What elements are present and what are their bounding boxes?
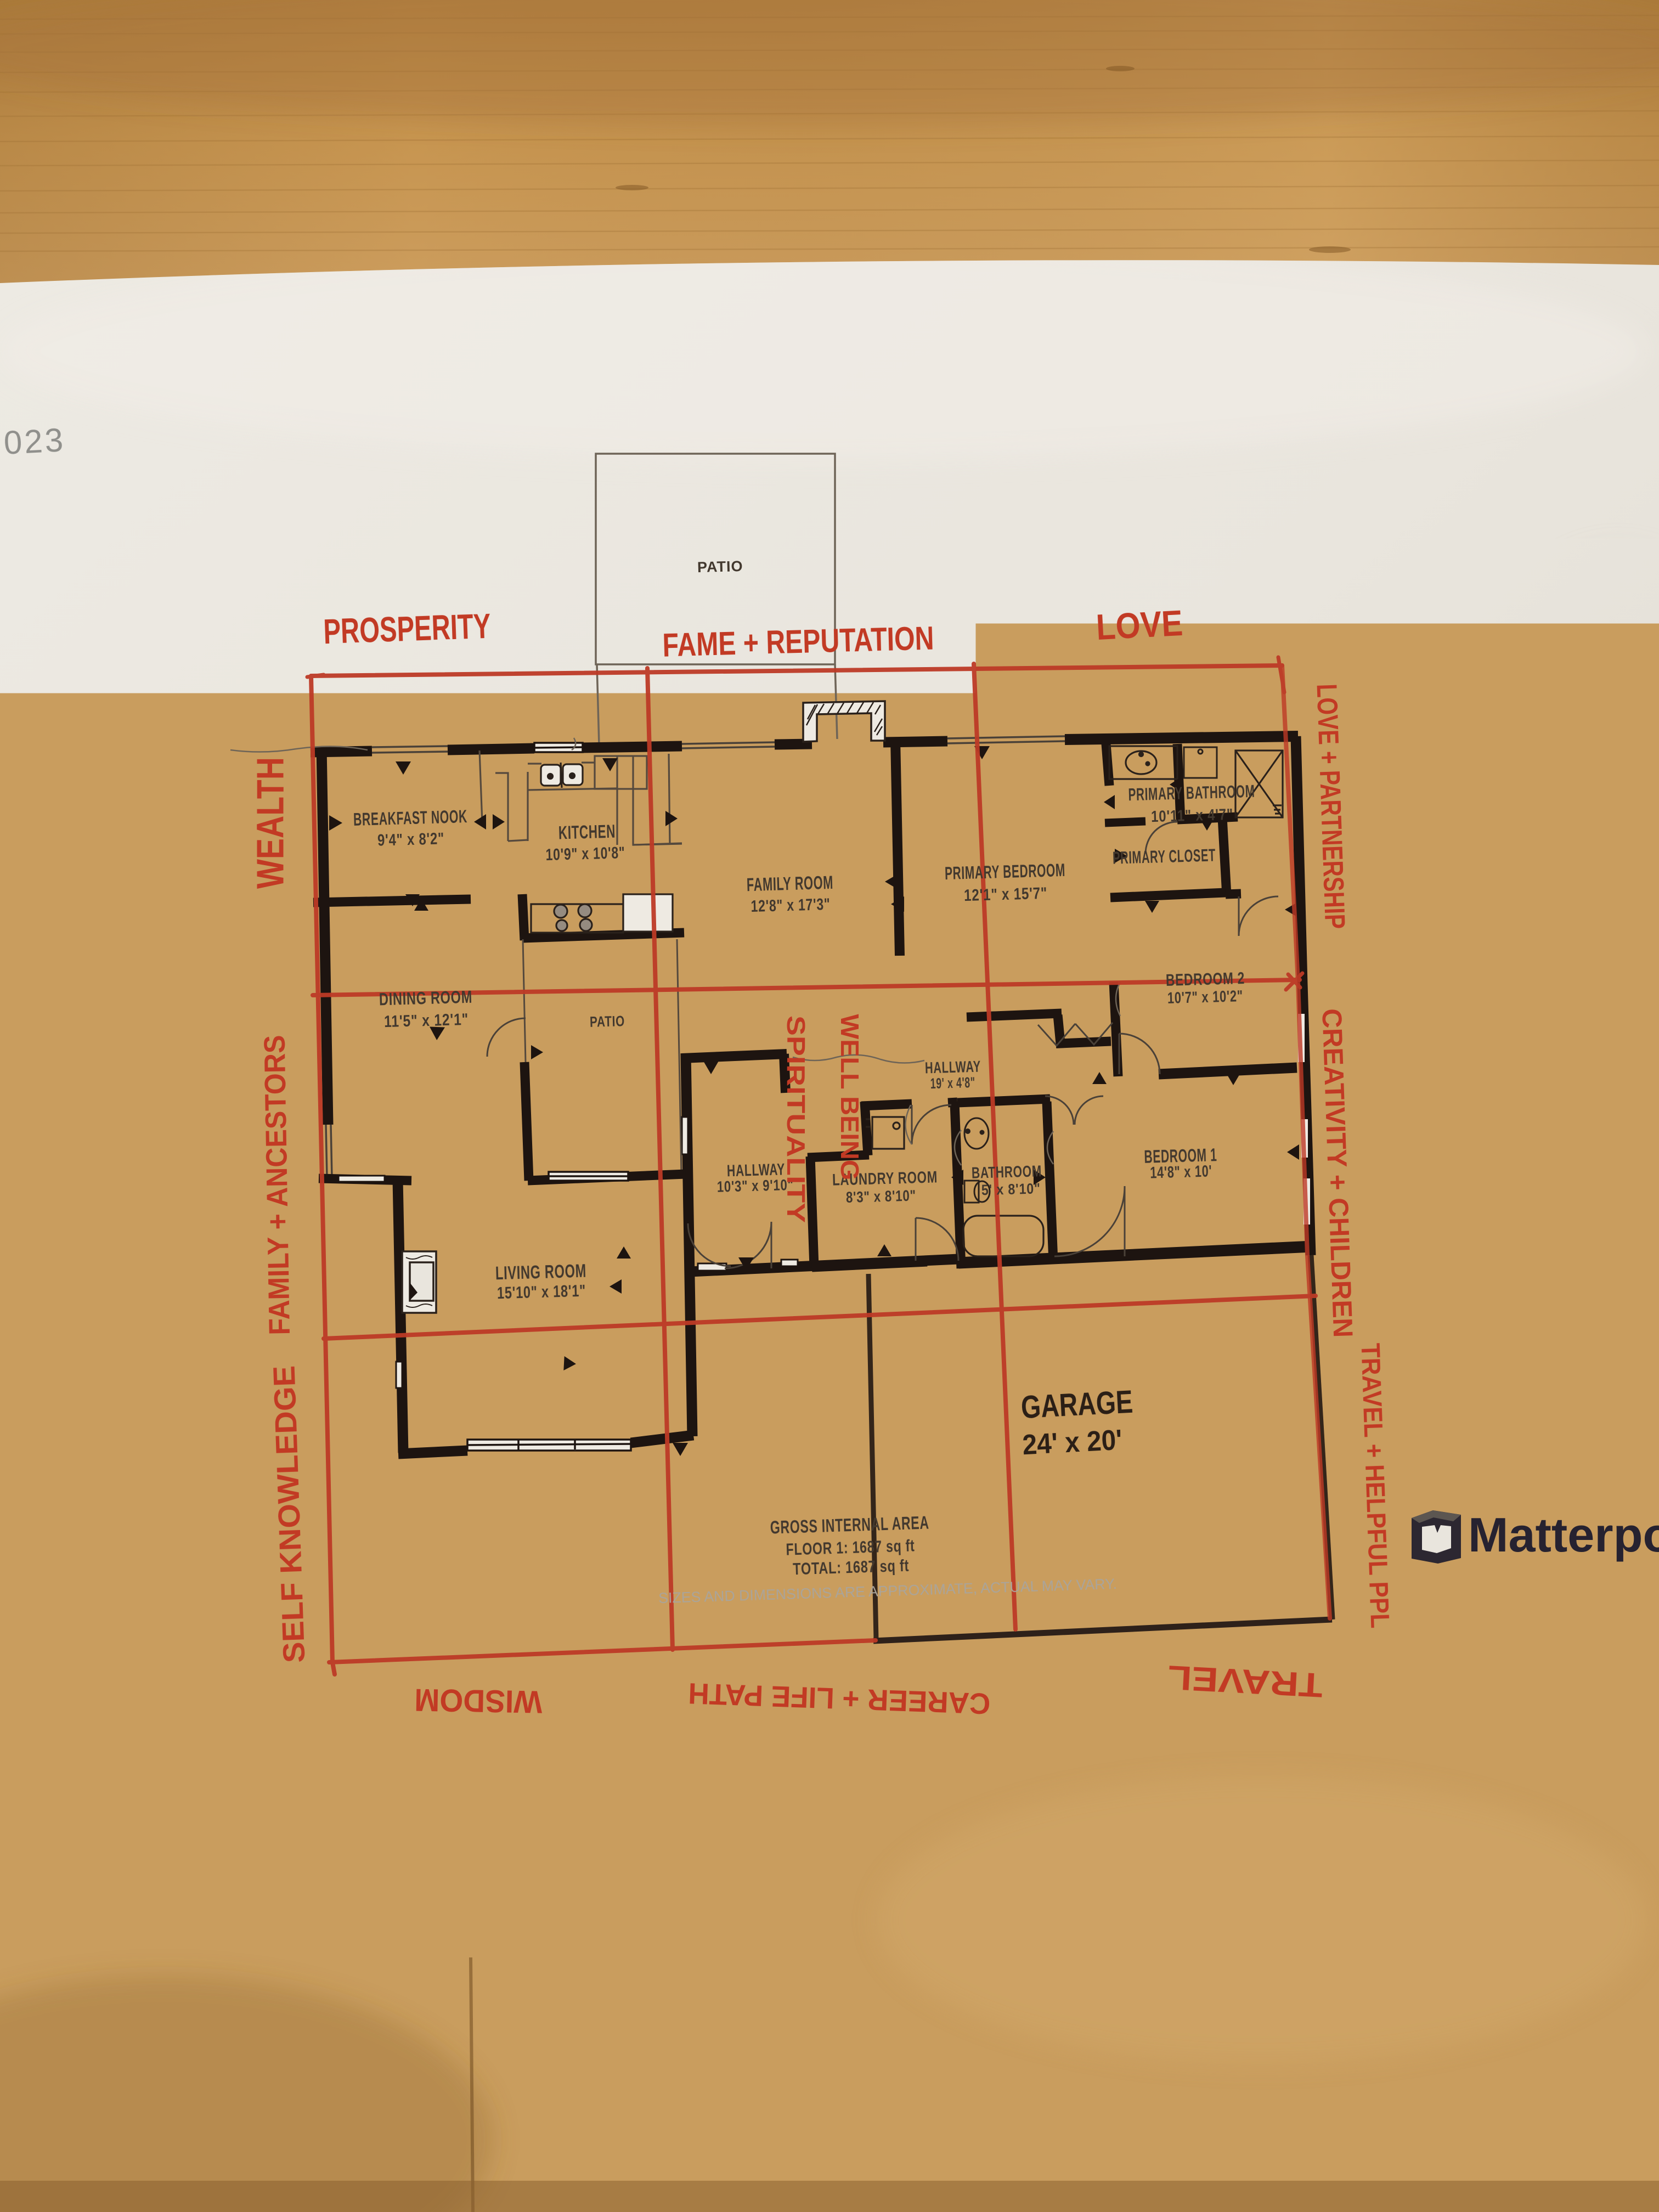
svg-text:BREAKFAST NOOK: BREAKFAST NOOK [353, 806, 467, 830]
svg-text:KITCHEN: KITCHEN [558, 821, 616, 844]
svg-text:10'11" x 4'7": 10'11" x 4'7" [1151, 806, 1234, 826]
svg-text:12'8" x 17'3": 12'8" x 17'3" [751, 895, 831, 916]
svg-text:PRIMARY CLOSET: PRIMARY CLOSET [1113, 845, 1216, 867]
svg-text:14'8" x 10': 14'8" x 10' [1150, 1162, 1212, 1182]
svg-text:10'7" x 10'2": 10'7" x 10'2" [1167, 988, 1244, 1007]
svg-text:24' x 20': 24' x 20' [1022, 1424, 1123, 1461]
svg-text:BEDROOM 2: BEDROOM 2 [1166, 968, 1245, 990]
svg-text:12'1" x 15'7": 12'1" x 15'7" [964, 884, 1048, 905]
svg-text:FAMILY ROOM: FAMILY ROOM [746, 872, 833, 895]
svg-text:PATIO: PATIO [697, 558, 743, 575]
svg-text:PATIO: PATIO [590, 1013, 625, 1030]
svg-text:023: 023 [3, 421, 66, 461]
svg-text:WISDOM: WISDOM [414, 1682, 543, 1720]
svg-text:GARAGE: GARAGE [1020, 1384, 1133, 1426]
svg-text:5' x 8'10": 5' x 8'10" [981, 1180, 1041, 1198]
svg-text:LOVE: LOVE [1095, 602, 1184, 647]
svg-text:11'5" x 12'1": 11'5" x 12'1" [384, 1011, 469, 1031]
svg-text:15'10" x 18'1": 15'10" x 18'1" [497, 1281, 586, 1303]
svg-text:BATHROOM: BATHROOM [972, 1163, 1042, 1182]
svg-text:PROSPERITY: PROSPERITY [323, 606, 491, 652]
svg-text:SPIRITUALITY: SPIRITUALITY [782, 1015, 810, 1223]
svg-text:TOTAL: 1687 sq ft: TOTAL: 1687 sq ft [793, 1556, 910, 1579]
svg-text:9'4" x 8'2": 9'4" x 8'2" [377, 830, 445, 849]
svg-text:PRIMARY BEDROOM: PRIMARY BEDROOM [944, 860, 1065, 883]
svg-text:Matterport: Matterport [1468, 1508, 1659, 1562]
svg-text:8'3" x 8'10": 8'3" x 8'10" [846, 1187, 917, 1206]
svg-text:FAME + REPUTATION: FAME + REPUTATION [662, 620, 935, 664]
svg-text:19' x 4'8": 19' x 4'8" [930, 1074, 975, 1092]
svg-text:FLOOR 1: 1687 sq ft: FLOOR 1: 1687 sq ft [786, 1536, 915, 1559]
svg-text:LIVING ROOM: LIVING ROOM [495, 1261, 586, 1284]
svg-text:WELL BEING: WELL BEING [836, 1014, 864, 1181]
svg-text:DINING ROOM: DINING ROOM [379, 987, 473, 1009]
svg-text:WEALTH: WEALTH [249, 757, 291, 889]
svg-text:10'9" x 10'8": 10'9" x 10'8" [545, 844, 625, 864]
svg-text:FAMILY + ANCESTORS: FAMILY + ANCESTORS [258, 1035, 296, 1335]
svg-text:PRIMARY BATHROOM: PRIMARY BATHROOM [1128, 781, 1255, 804]
